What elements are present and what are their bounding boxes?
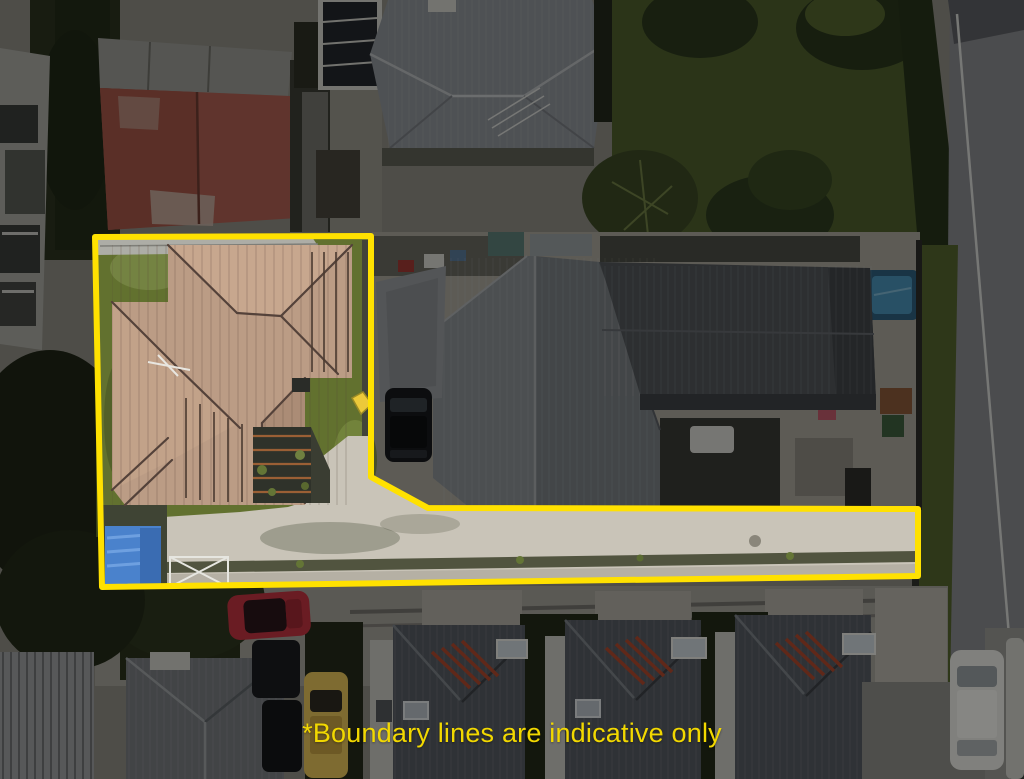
screenshot-root: *Boundary lines are indicative only bbox=[0, 0, 1024, 779]
aerial-photo-canvas bbox=[0, 0, 1024, 779]
blue-tarp bbox=[105, 526, 161, 586]
ac-unit bbox=[292, 378, 310, 392]
